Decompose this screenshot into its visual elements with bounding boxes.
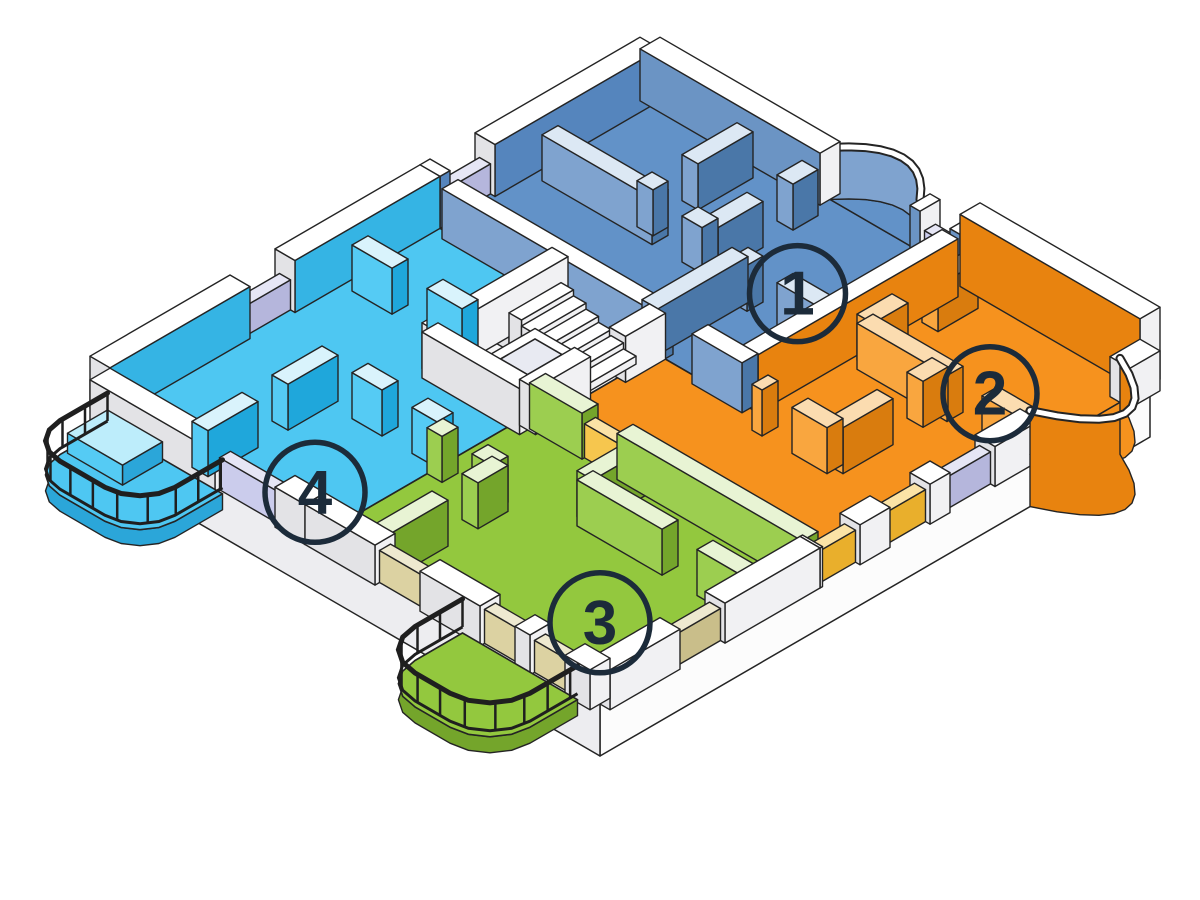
unit-2-badge-number: 2	[973, 360, 1007, 429]
isometric-floor-plan-page: 1234	[0, 0, 1200, 900]
u2-partition-c-face	[752, 384, 762, 436]
u1-partition-a-face	[653, 181, 668, 236]
unit-3-badge-number: 3	[583, 589, 617, 658]
unit-4-badge-number: 4	[298, 458, 333, 527]
unit-1-badge-number: 1	[780, 260, 814, 329]
isometric-floor-plan: 1234	[0, 0, 1200, 900]
u3-partition-d-face	[427, 428, 442, 483]
